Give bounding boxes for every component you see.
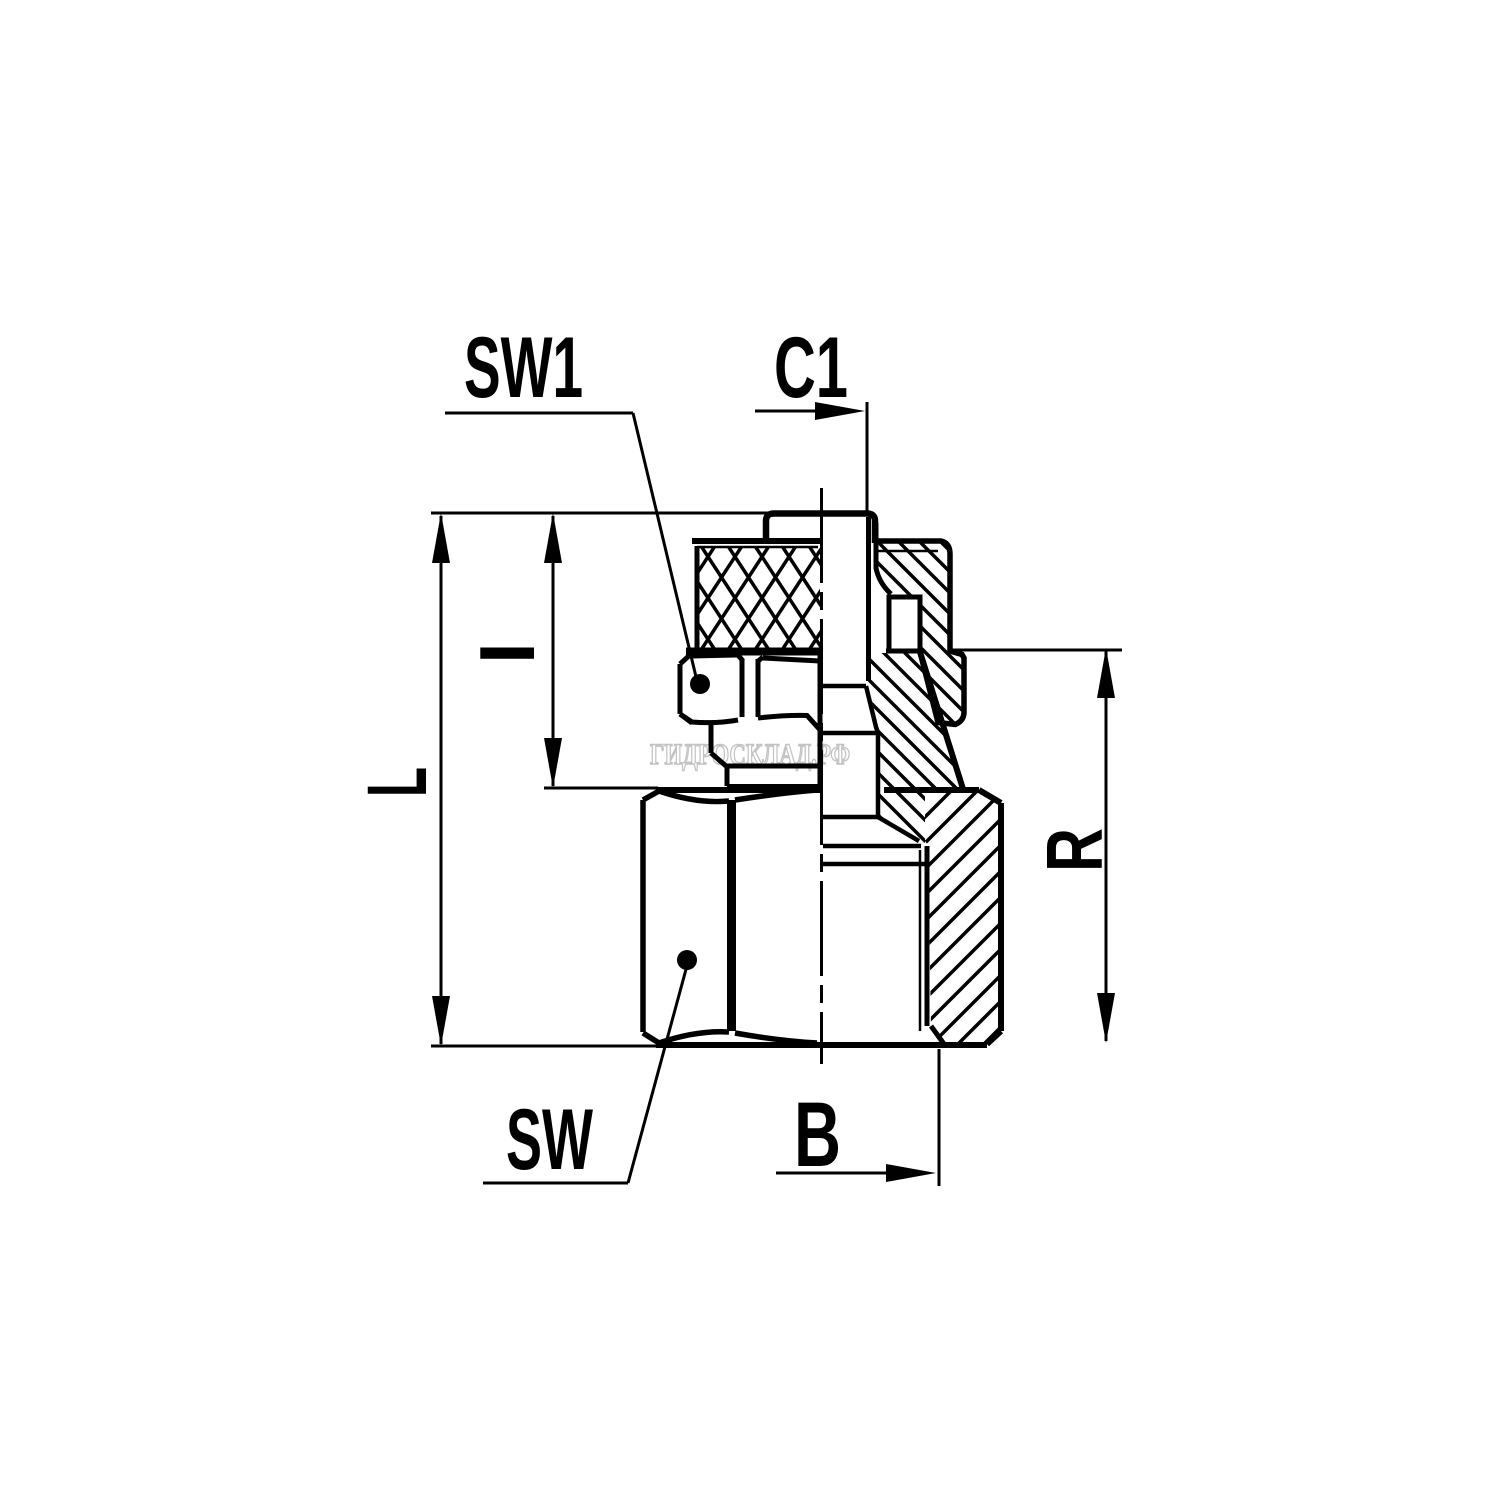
svg-text:R: R [1030,828,1119,872]
svg-text:C1: C1 [774,320,848,416]
svg-text:I: I [463,642,551,664]
svg-text:L: L [350,767,444,797]
svg-text:B: B [794,1084,841,1186]
svg-text:SW1: SW1 [464,320,583,416]
svg-text:SW: SW [506,1092,594,1188]
